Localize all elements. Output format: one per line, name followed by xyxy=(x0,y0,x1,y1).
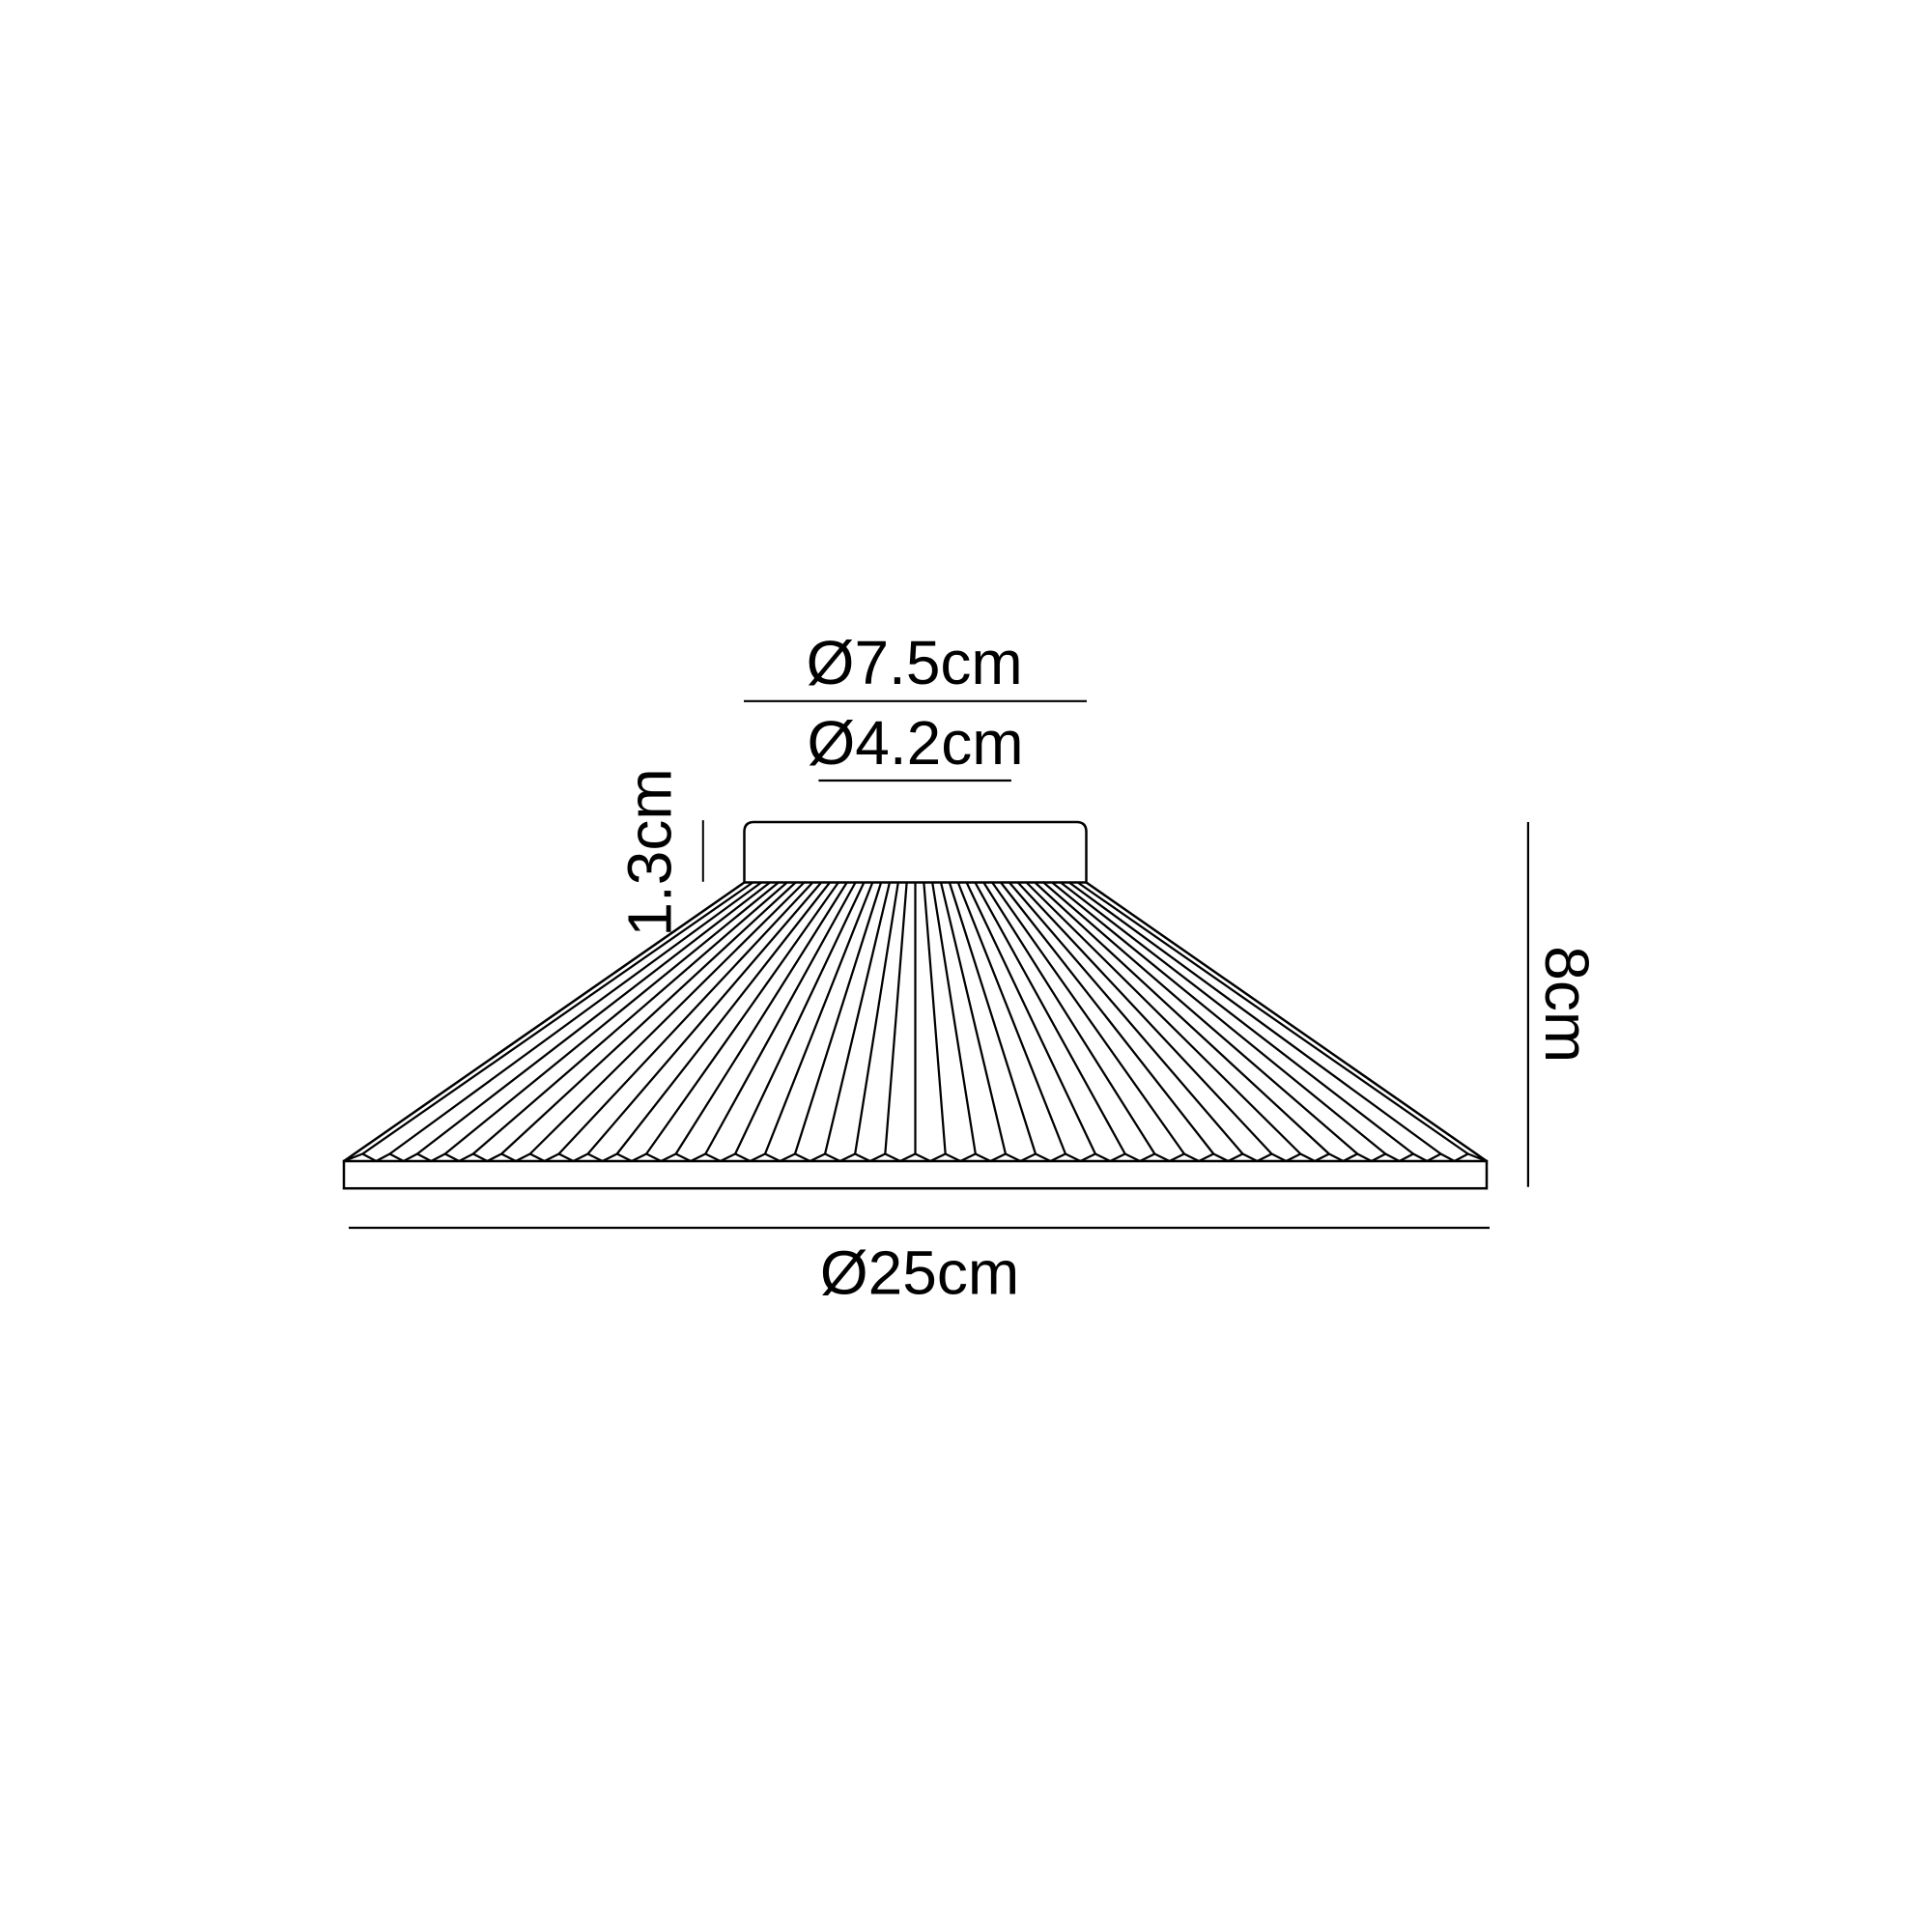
svg-text:Ø4.2cm: Ø4.2cm xyxy=(807,708,1023,778)
svg-text:8cm: 8cm xyxy=(1532,946,1602,1063)
svg-text:Ø7.5cm: Ø7.5cm xyxy=(807,628,1023,697)
svg-text:Ø25cm: Ø25cm xyxy=(820,1238,1019,1308)
svg-text:1.3cm: 1.3cm xyxy=(615,768,685,936)
